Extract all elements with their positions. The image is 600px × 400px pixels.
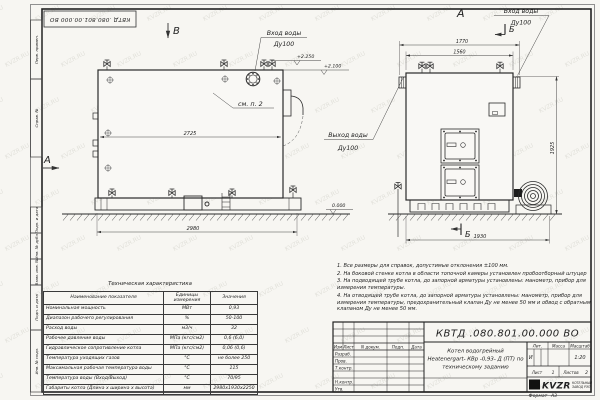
- role-nkontr: Н.контр.: [335, 380, 353, 385]
- tech-header-row: Наименование показателя Единицы измерени…: [44, 292, 258, 305]
- param-name: Номинальная мощность: [44, 305, 164, 315]
- mass-header: Масса: [552, 344, 566, 349]
- param-value: 2980х1930х2250: [211, 385, 258, 395]
- table-row: Гидравлическое сопротивление котлаМПа (к…: [44, 345, 258, 355]
- margin-label: Подп. и дата: [34, 294, 39, 321]
- param-name: Рабочее давление воды: [44, 335, 164, 345]
- lit-value: И: [529, 355, 533, 361]
- callout-see-note: см. п. 2: [238, 100, 263, 108]
- callout-inlet-right-1: Вход воды: [504, 8, 539, 15]
- drawing-sheet: KVZR.RUKVZR.RUKVZR.RUKVZR.RUKVZR.RUKVZR.…: [0, 0, 600, 400]
- dim-side-top: 2725: [184, 131, 197, 137]
- param-value: 115: [211, 365, 258, 375]
- param-unit: МПа (кгс/см2): [164, 335, 211, 345]
- table-row: Номинальная мощностьМВт0,93: [44, 305, 258, 315]
- sheets-label: Листов: [562, 370, 579, 375]
- dim-front-inner: 1560: [453, 49, 465, 55]
- param-unit: °С: [164, 365, 211, 375]
- section-label-b-bottom: Б: [465, 230, 471, 239]
- tech-header: Значения: [211, 292, 258, 305]
- margin-label: Подп. и дата: [34, 206, 39, 233]
- elevation-2: +2.100: [324, 64, 341, 70]
- role-prov: Пров.: [335, 359, 347, 364]
- col-podp: Подп.: [392, 344, 404, 349]
- param-value: 32: [211, 325, 258, 335]
- tech-table-title: Техническая характеристика: [43, 281, 257, 287]
- tech-header: Единицы измерения: [164, 292, 211, 305]
- note-2: 2. На боковой стенке котла в области топ…: [337, 271, 591, 278]
- col-list: Лист: [342, 344, 354, 349]
- callout-inlet-left-1: Вход воды: [267, 30, 302, 37]
- param-unit: °С: [164, 375, 211, 385]
- param-unit: мм: [164, 385, 211, 395]
- door-swing-arc: [283, 116, 303, 146]
- scale-header: Масштаб: [570, 344, 590, 349]
- product-name-3: техническому заданию: [442, 365, 509, 371]
- product-name-2: Heatenergart- КВр -0,93- Д (ПТ) по: [427, 357, 524, 363]
- callout-inlet-right-2: Ду100: [510, 20, 531, 27]
- sheet-label: Лист: [531, 370, 543, 375]
- col-izm: Изм: [334, 344, 342, 349]
- flue-stub: [283, 90, 291, 116]
- role-razrab: Разраб.: [335, 352, 351, 357]
- front-base: [410, 200, 509, 212]
- table-row: Рабочее давление водыМПа (кгс/см2)0,6 (6…: [44, 335, 258, 345]
- dim-front-outer: 1770: [456, 39, 468, 45]
- note-4: 4. На отводящей трубе котла, до запорной…: [337, 293, 591, 313]
- param-value: 0,93: [211, 305, 258, 315]
- dim-front-height: 1925: [550, 142, 556, 155]
- logo-text: KVZR: [542, 382, 571, 392]
- margin-label: Перв. примен.: [34, 35, 39, 64]
- table-row: Расход водым3/ч32: [44, 325, 258, 335]
- table-row: Диапазон рабочего регулирования%50-100: [44, 315, 258, 325]
- table-row: Температура уходящих газов°Сне более 250: [44, 355, 258, 365]
- param-unit: МПа (кгс/см2): [164, 345, 211, 355]
- dim-side-bottom: 2980: [187, 226, 200, 232]
- callout-inlet-left-2: Ду100: [273, 41, 294, 48]
- notes-block: 1. Все размеры для справок, допустимые о…: [337, 263, 591, 314]
- view-label-b-top: В: [173, 26, 180, 37]
- margin-label: Инв. № подл.: [34, 348, 39, 375]
- format-label: Формат: [529, 393, 548, 399]
- role-labels: Разраб. Пров. Т.контр. Н.контр. Утв.: [335, 352, 353, 392]
- callout-outlet-1: Выход воды: [328, 132, 368, 139]
- param-unit: %: [164, 315, 211, 325]
- kvzr-logo: KVZR КОТЕЛЬНЫЙ ЗАВОД РЭП: [529, 380, 593, 392]
- param-name: Максимальная рабочая температура воды: [44, 365, 164, 375]
- view-label-a-front: А: [456, 7, 465, 20]
- margin-label: Взам. инв. №: [34, 259, 39, 285]
- doc-number: КВТД .080.801.00.000 ВО: [436, 329, 579, 340]
- role-utv: Утв.: [335, 386, 344, 391]
- margin-labels: Перв. примен. Справ. № Подп. и дата Инв.…: [34, 35, 39, 375]
- param-value: не более 250: [211, 355, 258, 365]
- param-unit: м3/ч: [164, 325, 211, 335]
- role-tkontr: Т.контр.: [335, 366, 353, 371]
- param-unit: МВт: [164, 305, 211, 315]
- note-3: 3. На подводящей трубе котла, до запорно…: [337, 278, 591, 291]
- param-name: Диапазон рабочего регулирования: [44, 315, 164, 325]
- param-value: 0,06 (0,6): [211, 345, 258, 355]
- side-wall-fittings: [93, 113, 98, 157]
- logo-sub2: ЗАВОД РЭП: [572, 385, 591, 389]
- lit-header: Лит.: [532, 344, 542, 349]
- margin-label: Инв. № дубл.: [34, 233, 39, 260]
- col-data: Дата: [410, 344, 422, 349]
- param-name: Расход воды: [44, 325, 164, 335]
- boiler-side-view: [93, 60, 303, 210]
- param-name: Температура воды (Вход/Выход): [44, 375, 164, 385]
- corner-stamp: КВТД .080.801.00.000 ВО: [44, 11, 136, 27]
- table-row: Температура воды (Вход/Выход)°С70/95: [44, 375, 258, 385]
- margin-boxes: [31, 20, 43, 392]
- product-name-1: Котел водогрейный: [447, 349, 504, 355]
- format-value: А3: [550, 393, 557, 399]
- table-row: Габариты котла (Длина х ширина х высота)…: [44, 385, 258, 395]
- param-name: Гидравлическое сопротивление котла: [44, 345, 164, 355]
- table-row: Максимальная рабочая температура воды°С1…: [44, 365, 258, 375]
- param-unit: °С: [164, 355, 211, 365]
- scale-value: 1:20: [574, 355, 585, 361]
- param-name: Габариты котла (Длина х ширина х высота): [44, 385, 164, 395]
- view-label-a-left: А: [43, 155, 51, 166]
- sheet-value: 1: [552, 370, 555, 376]
- note-1: 1. Все размеры для справок, допустимые о…: [337, 263, 591, 270]
- param-name: Температура уходящих газов: [44, 355, 164, 365]
- sheets-value: 2: [585, 370, 588, 376]
- tech-table: Наименование показателя Единицы измерени…: [43, 291, 258, 395]
- elevation-1: +2.250: [297, 54, 314, 60]
- param-value: 70/95: [211, 375, 258, 385]
- title-block: КВТД .080.801.00.000 ВО Изм Лист N докум…: [333, 322, 593, 399]
- ground-line: [62, 214, 562, 221]
- boiler-front-view: [395, 62, 551, 237]
- logo-sub1: КОТЕЛЬНЫЙ: [572, 380, 593, 385]
- margin-label: Справ. №: [34, 109, 39, 128]
- elevation-3: 0.000: [332, 203, 345, 209]
- callout-outlet-2: Ду100: [337, 145, 358, 152]
- col-dokum: N докум.: [361, 344, 380, 349]
- dim-front-bottom: 1930: [474, 234, 487, 240]
- param-value: 50-100: [211, 315, 258, 325]
- tech-header: Наименование показателя: [44, 292, 164, 305]
- param-value: 0,6 (6,0): [211, 335, 258, 345]
- blower-fan: [514, 182, 551, 215]
- product-name: Котел водогрейный Heatenergart- КВр -0,9…: [427, 349, 524, 371]
